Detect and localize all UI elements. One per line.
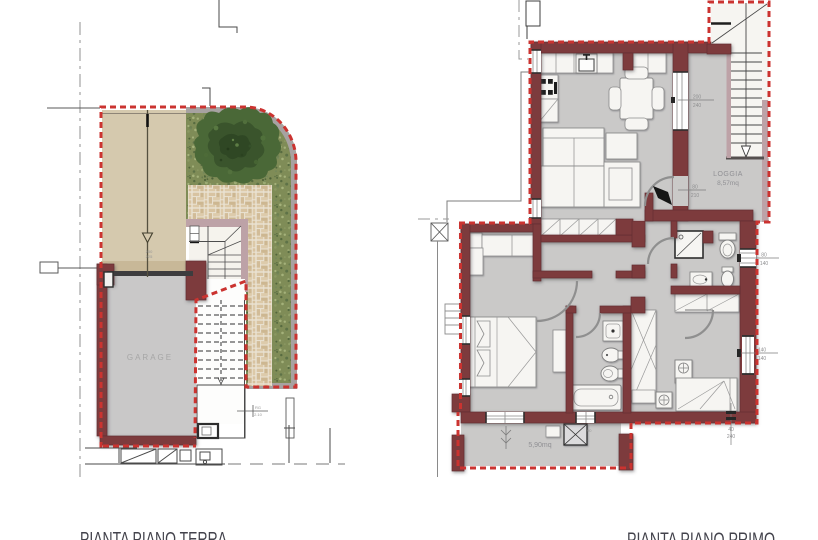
svg-text:80: 80: [692, 185, 698, 191]
svg-text:210: 210: [691, 193, 700, 199]
svg-text:225: 225: [146, 254, 153, 259]
svg-text:140: 140: [758, 356, 767, 362]
svg-text:8,57mq: 8,57mq: [717, 180, 739, 187]
svg-text:240: 240: [693, 103, 702, 109]
svg-text:140: 140: [760, 261, 769, 267]
svg-text:200: 200: [693, 95, 702, 101]
svg-text:140: 140: [758, 348, 767, 354]
svg-text:PIANTA PIANO PRIMO: PIANTA PIANO PRIMO: [627, 530, 775, 540]
svg-text:5,90mq: 5,90mq: [528, 442, 551, 449]
svg-text:PIANTA PIANO TERRA: PIANTA PIANO TERRA: [80, 530, 227, 540]
svg-text:LOGGIA: LOGGIA: [713, 171, 743, 178]
svg-text:240: 240: [727, 434, 736, 440]
svg-text:2.10: 2.10: [254, 412, 263, 417]
svg-text:90: 90: [587, 428, 592, 433]
svg-text:GARAGE: GARAGE: [127, 353, 173, 362]
svg-text:40: 40: [728, 427, 734, 433]
svg-text:RG: RG: [255, 405, 261, 410]
svg-text:80: 80: [761, 253, 767, 259]
